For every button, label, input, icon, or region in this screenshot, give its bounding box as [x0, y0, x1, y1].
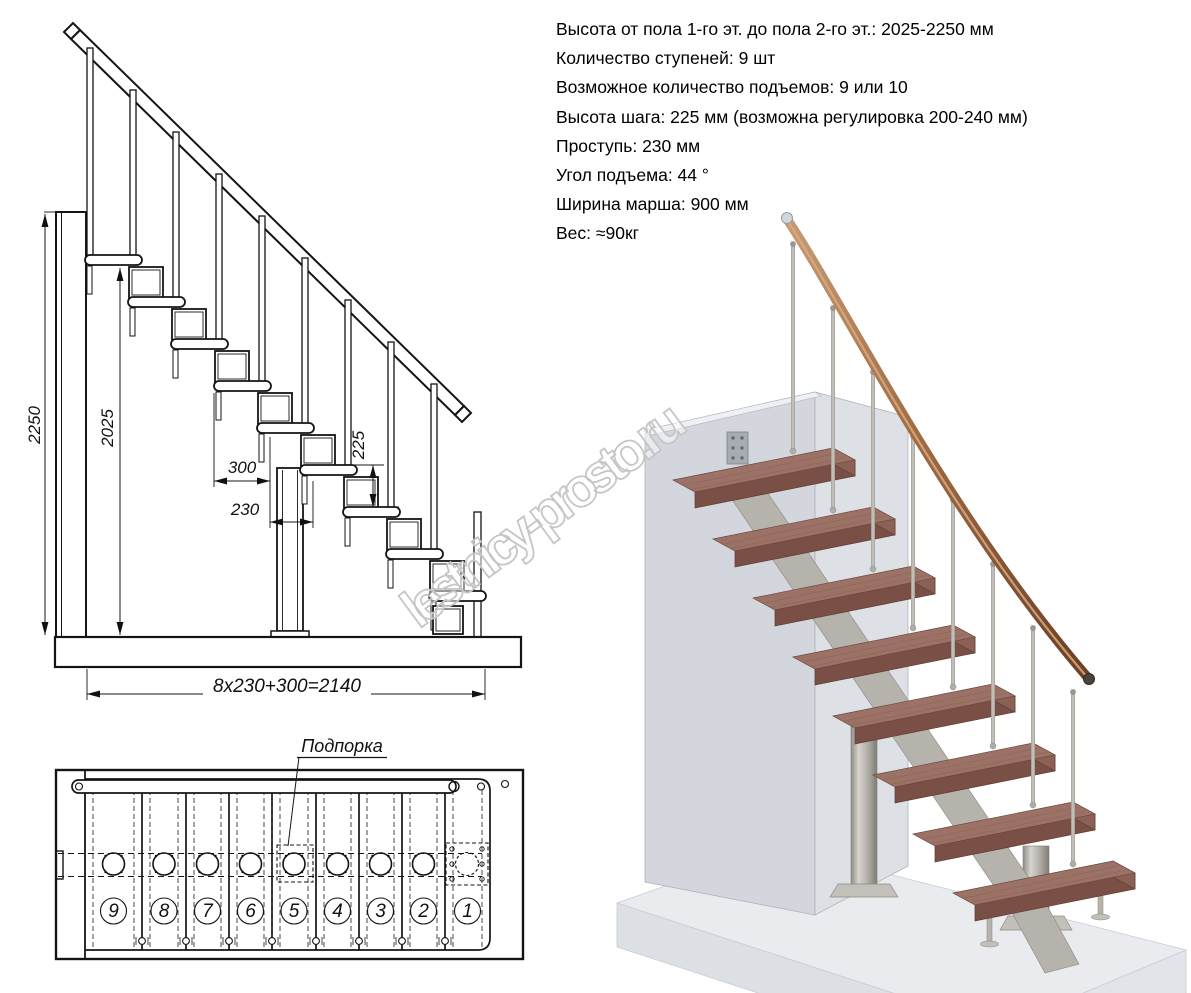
tread-elevation: [386, 549, 443, 559]
riser-link: [173, 350, 178, 378]
upper-floor-support: [56, 212, 86, 637]
bolt-dot: [198, 855, 200, 857]
baluster-foot: [1070, 861, 1076, 867]
module-box: [387, 519, 421, 550]
bolt-dot: [241, 855, 243, 857]
spec-line: Ширина марша: 900 мм: [556, 190, 1176, 219]
bolt-dot: [285, 871, 287, 873]
tread-elevation: [128, 297, 185, 307]
bolt-dot: [371, 871, 373, 873]
baluster-joint: [1070, 689, 1075, 694]
step-number: 9: [108, 901, 119, 922]
bolt-dot: [104, 855, 106, 857]
spec-line: Возможное количество подъемов: 9 или 10: [556, 73, 1176, 102]
bolt-dot: [171, 871, 173, 873]
baluster: [302, 258, 308, 424]
fastener-icon: [226, 938, 233, 945]
module-box: [215, 351, 249, 382]
dim-rise: 225: [349, 430, 368, 460]
bolt-dot: [214, 855, 216, 857]
tread-elevation: [85, 255, 142, 265]
baluster: [431, 384, 437, 550]
spec-line: Высота от пола 1-го эт. до пола 2-го эт.…: [556, 15, 1176, 44]
baluster-3d: [951, 498, 955, 687]
bolt-dot: [198, 871, 200, 873]
baluster: [216, 174, 222, 340]
baluster-joint: [1030, 625, 1035, 630]
tread-elevation: [429, 591, 486, 601]
riser-link: [130, 308, 135, 336]
spec-line: Высота шага: 225 мм (возможна регулировк…: [556, 103, 1176, 132]
riser-link: [259, 434, 264, 462]
floor-elevation: [55, 637, 521, 667]
dim-floor-height: 2025: [98, 409, 117, 448]
fastener-icon: [139, 938, 146, 945]
bolt-dot: [344, 871, 346, 873]
baluster-foot: [950, 684, 956, 690]
bolt-dot: [214, 871, 216, 873]
baluster-3d: [1071, 690, 1075, 864]
support-label: Подпорка: [301, 736, 382, 756]
bolt-dot: [328, 855, 330, 857]
riser-link: [87, 266, 92, 294]
baluster-3d: [831, 306, 835, 510]
step-number: 5: [289, 901, 300, 922]
baluster-foot: [790, 448, 796, 454]
bolt-dot: [344, 855, 346, 857]
step-number: 4: [332, 901, 343, 922]
step-number: 6: [245, 901, 256, 922]
handrail-plan: [72, 780, 509, 793]
render-3d: [617, 213, 1186, 993]
tread-elevation: [257, 423, 314, 433]
bolt-dot: [257, 855, 259, 857]
baluster-3d: [991, 562, 995, 746]
fastener-icon: [313, 938, 320, 945]
tread-elevation: [300, 465, 357, 475]
bolt-dot: [387, 855, 389, 857]
riser-link: [302, 476, 307, 504]
riser-link: [388, 560, 393, 588]
baluster: [130, 90, 136, 256]
dim-total-run: 8x230+300=2140: [213, 676, 361, 697]
spec-line: Количество ступеней: 9 шт: [556, 44, 1176, 73]
step-number: 1: [462, 901, 473, 922]
bolt-dot: [301, 871, 303, 873]
dim-tread-depth: 300: [228, 458, 257, 477]
bolt-dot: [414, 855, 416, 857]
bolt-dot: [155, 855, 157, 857]
baluster-foot: [910, 625, 916, 631]
bolt-dot: [430, 871, 432, 873]
baluster-3d: [871, 370, 875, 569]
module-box: [172, 309, 206, 340]
step-number: 8: [159, 901, 170, 922]
step-number: 2: [417, 901, 429, 922]
module-box: [129, 267, 163, 298]
bolt-dot: [120, 871, 122, 873]
baluster-foot: [1030, 802, 1036, 808]
baluster-3d: [1031, 626, 1035, 805]
baluster-3d: [791, 242, 795, 451]
fastener-icon: [356, 938, 363, 945]
plan-steps: 987654321: [93, 779, 482, 950]
handrail-elevation: [64, 23, 471, 422]
module-box: [258, 393, 292, 424]
spec-line: Угол подъема: 44 °: [556, 161, 1176, 190]
baluster-foot: [990, 743, 996, 749]
baluster: [173, 132, 179, 298]
baluster: [259, 216, 265, 382]
step-number: 7: [202, 901, 214, 922]
riser-link: [345, 518, 350, 546]
baluster: [388, 342, 394, 508]
bolt-dot: [120, 855, 122, 857]
plan-view-drawing: 987654321: [56, 736, 523, 959]
module-box: [433, 606, 463, 634]
bolt-dot: [328, 871, 330, 873]
baluster-foot: [830, 507, 836, 513]
module-box: [301, 435, 335, 466]
spec-line: Вес: ≈90кг: [556, 219, 1176, 248]
fastener-icon: [399, 938, 406, 945]
fastener-icon: [183, 938, 190, 945]
bolt-dot: [104, 871, 106, 873]
riser-link: [216, 392, 221, 420]
fastener-icon: [269, 938, 276, 945]
bolt-dot: [387, 871, 389, 873]
spec-line: Проступь: 230 мм: [556, 132, 1176, 161]
bolt-dot: [171, 855, 173, 857]
handrail-bottom-cap: [1084, 674, 1095, 685]
baluster-foot: [870, 566, 876, 572]
support-column: [277, 468, 303, 631]
baluster: [87, 48, 93, 255]
end-post: [474, 512, 481, 637]
bolt-dot: [301, 855, 303, 857]
bolt-dot: [414, 871, 416, 873]
spec-list: Высота от пола 1-го эт. до пола 2-го эт.…: [556, 15, 1176, 249]
bolt-dot: [285, 855, 287, 857]
dim-run: 230: [230, 500, 260, 519]
tread-elevation: [343, 507, 400, 517]
bolt-dot: [430, 855, 432, 857]
page: 2250 2025 300 230 225 8x230+300=2140 987…: [0, 0, 1191, 993]
elevation-drawing: 2250 2025 300 230 225 8x230+300=2140: [25, 23, 521, 700]
tread-elevation: [171, 339, 228, 349]
module-box: [430, 561, 464, 592]
bolt-dot: [155, 871, 157, 873]
step-number: 3: [375, 901, 386, 922]
bolt-dot: [371, 855, 373, 857]
elevation-steps: [85, 48, 486, 637]
tread-elevation: [214, 381, 271, 391]
baluster-3d: [911, 434, 915, 628]
bolt-dot: [257, 871, 259, 873]
wall-bracket: [727, 432, 748, 464]
fastener-icon: [442, 938, 449, 945]
bolt-dot: [241, 871, 243, 873]
dim-total-height: 2250: [25, 406, 44, 445]
